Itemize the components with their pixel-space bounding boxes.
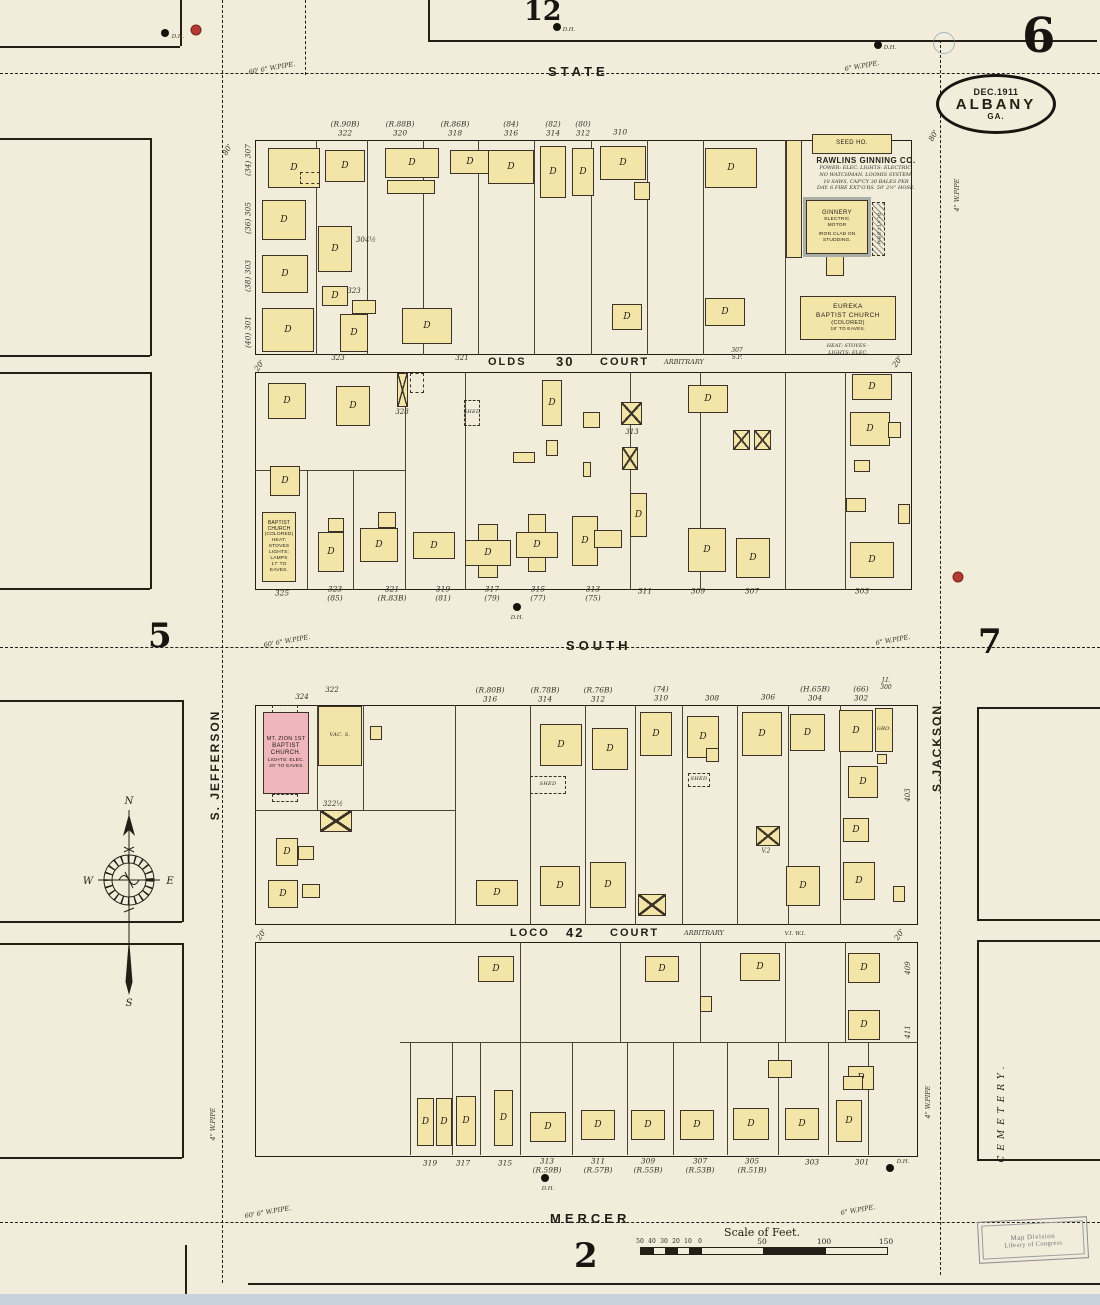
building <box>320 810 352 832</box>
lot-number: (R.86B) 318 <box>441 120 470 137</box>
building-label: D <box>699 732 706 742</box>
scale-legend: Scale of Feet. 50 40 30 20 10 0 50 100 1… <box>628 1226 896 1268</box>
lot-number: 305 (R.51B) <box>738 1157 767 1174</box>
lot-number: 301 <box>855 1159 869 1168</box>
building-label: D <box>644 1120 651 1130</box>
lot-number: 309 <box>691 588 705 597</box>
building: D <box>843 818 869 842</box>
adjacent-sheet-top: 12 <box>524 0 562 27</box>
frame-line <box>0 700 182 702</box>
building: D <box>540 146 566 198</box>
title-badge: DEC.1911 ALBANY GA. <box>936 74 1056 134</box>
mtzion-line-2: BAPTIST <box>272 743 300 751</box>
sanborn-map-sheet: DDDDDDDDDDDDDDDDDDDDDSHEDDDDDDDDDDDDDDDV… <box>0 0 1100 1305</box>
building-label: D <box>462 1116 469 1126</box>
fire-hydrant <box>191 25 202 36</box>
building-label: D <box>756 962 763 972</box>
building <box>638 894 666 916</box>
scale-tick: 10 <box>684 1238 692 1245</box>
building <box>706 748 719 762</box>
building-label: D <box>484 548 491 558</box>
building-label: D <box>281 269 288 279</box>
scan-edge <box>0 1294 1100 1305</box>
building: D <box>436 1098 452 1146</box>
frame-line <box>0 46 180 48</box>
building <box>826 256 844 276</box>
lot-number: (R.76B) 312 <box>584 686 613 703</box>
lot-number: D.H. <box>511 615 524 621</box>
lot-number: 310 <box>613 129 627 138</box>
building: D <box>325 150 365 182</box>
building-seed-house: SEED HO. <box>812 134 892 154</box>
building <box>328 518 344 532</box>
building: SHED <box>464 400 480 426</box>
building-label: D <box>422 1117 429 1127</box>
building-label: D <box>799 881 806 891</box>
frame-line <box>977 707 1100 709</box>
frame-line <box>0 1157 182 1159</box>
street-mercer: MERCER <box>550 1211 630 1226</box>
badge-city: ALBANY <box>956 97 1037 113</box>
lot-number: D.H. <box>884 45 897 51</box>
building <box>352 300 376 314</box>
lot-number: 308 <box>705 695 719 704</box>
building-label: D <box>280 215 287 225</box>
mtzion-line-3: CHURCH. <box>271 750 301 758</box>
building: D <box>476 880 518 906</box>
building-label: D <box>581 536 588 546</box>
baptist-line-6: 17' TO EAVES. <box>263 562 295 574</box>
building: D <box>516 532 558 558</box>
building: D <box>340 314 368 352</box>
eureka-note-2: LIGHTS: ELEC. <box>800 350 896 357</box>
lot-line <box>673 1042 674 1155</box>
water-pipe-label: 6" W.PIPE. <box>875 633 911 647</box>
lot-number: (H.65B) 304 <box>800 685 830 702</box>
building: D <box>581 1110 615 1140</box>
scale-bar-segment <box>665 1248 677 1254</box>
lot-number: 304½ <box>356 236 376 244</box>
building <box>370 726 382 740</box>
building-label: D <box>331 291 338 301</box>
scale-tick: 100 <box>817 1237 831 1246</box>
lot-number: (84) 316 <box>503 120 518 137</box>
building-label: D <box>493 888 500 898</box>
scale-bar-segment <box>653 1248 665 1254</box>
lot-line <box>307 470 308 590</box>
building-label: D <box>548 398 555 408</box>
building: D <box>705 148 757 188</box>
building: D <box>542 380 562 426</box>
baptist-line-4: HEAT: STOVES <box>263 538 295 550</box>
building-label: D <box>279 889 286 899</box>
building: VAC. S. <box>318 706 362 766</box>
lot-number: (R.80B) 316 <box>476 686 505 703</box>
building-label: D <box>866 424 873 434</box>
street-olds-number: 30 <box>556 354 574 369</box>
building: D <box>630 493 647 537</box>
scale-tick: 40 <box>648 1238 656 1245</box>
building-label: D <box>868 555 875 565</box>
building-label: D <box>852 825 859 835</box>
building: D <box>530 1112 566 1142</box>
building <box>302 884 320 898</box>
lot-line <box>572 1042 573 1155</box>
building-baptist-church-colored: BAPTIST CHURCH (COLORED) HEAT: STOVES LI… <box>262 512 296 582</box>
lot-number: (74) 310 <box>653 685 668 702</box>
frame-line <box>977 940 1100 942</box>
building-label: D <box>852 726 859 736</box>
building-label: D <box>860 1020 867 1030</box>
building: D <box>494 1090 513 1146</box>
lot-number: 306 <box>761 694 775 703</box>
building: D <box>450 150 490 174</box>
building: D <box>742 712 782 756</box>
building <box>622 447 638 470</box>
building <box>583 462 591 477</box>
building <box>843 1076 863 1090</box>
lot-number: D.H. <box>172 34 185 40</box>
building: D <box>843 862 875 900</box>
badge-state: GA. <box>987 112 1004 121</box>
building: D <box>402 308 452 344</box>
building-label: D <box>440 1117 447 1127</box>
building: D <box>790 714 825 751</box>
building: D <box>478 956 514 982</box>
street-olds-note: ARBITRARY <box>664 358 704 366</box>
lot-number: 409 <box>904 961 912 974</box>
lot-line <box>727 1042 728 1155</box>
lot-number: (36) 305 <box>245 202 254 234</box>
building: D <box>733 1108 769 1140</box>
lot-number: D.H. <box>542 1186 555 1192</box>
building <box>410 373 424 393</box>
rawlins-title: RAWLINS GINNING CO. <box>796 156 936 165</box>
utility-dot <box>161 29 169 37</box>
building-label: D <box>544 1122 551 1132</box>
street-loco-note: ARBITRARY <box>684 929 724 937</box>
scale-tick: 0 <box>698 1238 702 1245</box>
building-label: D <box>704 394 711 404</box>
scale-bar-segment <box>701 1248 763 1254</box>
water-pipe-label: 4" W.PIPE <box>924 1086 932 1119</box>
lot-number: 307 S.P. <box>731 348 742 362</box>
building: SHED <box>688 773 710 787</box>
building <box>583 412 600 428</box>
building: D <box>413 532 455 559</box>
building <box>877 754 887 764</box>
building: D <box>848 766 878 798</box>
frame-line <box>0 372 150 374</box>
lot-number: 411 <box>904 1025 912 1038</box>
building: D <box>572 148 594 196</box>
building-label: D <box>635 510 642 520</box>
lot-number: 315 <box>498 1160 512 1169</box>
building-label: D <box>859 777 866 787</box>
building-label: D <box>557 740 564 750</box>
building-label: D <box>350 328 357 338</box>
building-label: D <box>549 167 556 177</box>
building: D <box>680 1110 714 1140</box>
building: D <box>640 712 672 756</box>
lot-number: 325 <box>275 590 289 599</box>
scale-tick: 20 <box>672 1238 680 1245</box>
scale-tick: 50 <box>757 1237 767 1246</box>
lot-number: 319 (81) <box>435 585 450 602</box>
fire-hydrant <box>953 572 964 583</box>
lot-line <box>363 705 364 810</box>
building <box>733 430 750 450</box>
building-label: D <box>283 396 290 406</box>
building-label: D <box>331 244 338 254</box>
water-pipe-line <box>305 0 306 75</box>
building: D <box>276 838 298 866</box>
building <box>621 402 642 425</box>
building-label: D <box>703 545 710 555</box>
building <box>397 373 408 407</box>
building: D <box>262 308 314 352</box>
lot-line <box>620 942 621 1042</box>
eureka-note-1: HEAT: STOVES - <box>800 343 896 350</box>
building: D <box>456 1096 476 1146</box>
lot-number: 317 (79) <box>484 585 499 602</box>
street-s-jackson: S.JACKSON <box>930 704 944 792</box>
lot-number: 321 (R.83B) <box>378 585 407 602</box>
scale-tick: 150 <box>879 1237 893 1246</box>
building-label: D <box>579 167 586 177</box>
ginnery-clad-2: STUDDING. <box>823 238 851 244</box>
building-label: D <box>281 476 288 486</box>
water-pipe-line <box>222 0 223 1283</box>
building: D <box>336 386 370 426</box>
eureka-line-3: (COLORED) <box>831 320 865 327</box>
rawlins-ginning-co-label: RAWLINS GINNING CO. POWER: ELEC. LIGHTS:… <box>796 156 936 192</box>
building-label: D <box>868 382 875 392</box>
baptist-line-5: LIGHTS: LAMPS <box>263 550 295 562</box>
lot-number: 311 <box>638 588 652 597</box>
building: D <box>318 532 344 572</box>
lot-line <box>703 140 704 355</box>
compass-w: W <box>83 876 94 887</box>
building-label: D <box>341 161 348 171</box>
building: D <box>645 956 679 982</box>
utility-dot <box>513 603 521 611</box>
building: D <box>540 866 580 906</box>
lot-number: 80' <box>221 143 234 157</box>
building-label: D <box>327 547 334 557</box>
lot-number: (34) 307 <box>245 144 254 176</box>
lot-line <box>647 140 648 355</box>
building-label: SHED <box>540 782 557 788</box>
lot-number: J.I. 300 <box>880 678 891 692</box>
building-label: D <box>556 881 563 891</box>
lot-number: 328 <box>395 408 408 416</box>
scale-bar-segment <box>825 1248 887 1254</box>
adjacent-sheet-left: 5 <box>148 616 172 656</box>
lot-number: (R.90B) 322 <box>331 120 360 137</box>
building <box>888 422 901 438</box>
loc-stamp-inner: Map Division Library of Congress <box>981 1220 1085 1259</box>
building-label: D <box>747 1119 754 1129</box>
street-state: STATE <box>548 64 609 79</box>
lot-number: 323 <box>347 287 360 295</box>
lot-number: 322½ <box>323 800 343 808</box>
building-ginnery: GINNERY ELECTRIC MOTOR IRON CLAD ON STUD… <box>806 200 868 254</box>
building-label: D <box>604 880 611 890</box>
building: D <box>785 1108 819 1140</box>
lot-line <box>534 140 535 355</box>
building: D <box>848 1010 880 1040</box>
building <box>272 794 298 802</box>
scale-tick: 30 <box>660 1238 668 1245</box>
lot-line <box>700 942 701 1042</box>
lot-line <box>785 942 786 1042</box>
building-label: GRO. <box>877 727 891 733</box>
compass-e: E <box>165 876 174 887</box>
scale-bar-segment <box>677 1248 689 1254</box>
mtzion-line-1: MT. ZION 1ST <box>267 736 306 743</box>
building-label: D <box>758 729 765 739</box>
building: D <box>540 724 582 766</box>
utility-dot <box>874 41 882 49</box>
lot-number: 303 <box>855 588 869 597</box>
building: D <box>631 1110 665 1140</box>
building-label: D <box>845 1116 852 1126</box>
cemetery-label: CEMETERY. <box>997 1062 1007 1163</box>
eureka-line-2: BAPTIST CHURCH <box>816 312 880 320</box>
lot-number: (R.88B) 320 <box>386 120 415 137</box>
lot-line <box>785 372 786 590</box>
building: D <box>268 383 306 419</box>
building-label: D <box>290 163 297 173</box>
building: D <box>736 538 770 578</box>
rawlins-detail-4: DAY. 6 FIRE EXT'G'RS. 50' 2½" HOSE. <box>796 185 936 192</box>
utility-dot <box>541 1174 549 1182</box>
utility-dot <box>886 1164 894 1172</box>
mtzion-line-5: 20' TO EAVES <box>269 764 302 770</box>
building-label: D <box>284 325 291 335</box>
lot-line <box>682 705 683 925</box>
building: D <box>590 862 626 908</box>
lot-number: 323 (85) <box>327 585 342 602</box>
building: GRO. <box>875 708 893 752</box>
building <box>854 460 870 472</box>
lot-line <box>530 705 531 925</box>
street-loco-type: COURT <box>610 927 659 939</box>
platform-label: PLATFORM <box>876 213 881 245</box>
building: D <box>705 298 745 326</box>
building-label: D <box>507 162 514 172</box>
sheet-number: 6 <box>1022 8 1055 64</box>
lot-number: 307 <box>745 588 759 597</box>
building: D <box>848 953 880 983</box>
frame-line <box>150 372 152 589</box>
lot-number: 20' <box>255 928 269 942</box>
lot-line <box>353 470 354 590</box>
building-label: D <box>860 963 867 973</box>
building-label: D <box>721 307 728 317</box>
building-platform: PLATFORM <box>872 202 885 256</box>
street-s-jefferson: S. JEFFERSON <box>208 710 222 821</box>
building: D <box>262 255 308 293</box>
lot-line <box>455 705 456 925</box>
lot-number: V.2 <box>761 849 770 856</box>
frame-line <box>977 1159 1100 1161</box>
lot-number: 309 (R.55B) <box>634 1157 663 1174</box>
water-pipe-label: 60' 6" W.PIPE. <box>244 1204 292 1220</box>
frame-line <box>150 138 152 356</box>
building: D <box>592 728 628 770</box>
water-pipe-line <box>940 40 941 1275</box>
lot-line <box>452 1042 453 1155</box>
rawlins-detail-1: POWER: ELEC. LIGHTS: ELECTRIC. <box>796 165 936 172</box>
eureka-line-4: 18' TO EAVES. <box>831 327 866 333</box>
building-label: D <box>855 876 862 886</box>
lot-number: (80) 312 <box>575 120 590 137</box>
building: D <box>740 953 780 981</box>
lot-line <box>255 810 455 811</box>
lot-number: 303 <box>805 1159 819 1168</box>
building: D <box>262 200 306 240</box>
lot-number: 324 <box>295 693 308 701</box>
street-olds-name: OLDS <box>488 356 527 368</box>
compass-south-spike <box>126 938 133 995</box>
lot-number: 313 (75) <box>585 585 600 602</box>
building-label: D <box>727 163 734 173</box>
lot-line <box>868 1042 869 1155</box>
building <box>846 498 866 512</box>
water-pipe-label: 4" W.PIPE <box>953 179 961 212</box>
scale-bar <box>640 1247 888 1255</box>
building: D <box>688 385 728 413</box>
lot-number: D.H. <box>897 1159 910 1165</box>
building: D <box>385 148 439 178</box>
lot-line <box>585 705 586 925</box>
building-label: SHED <box>691 777 708 783</box>
building-label: D <box>652 729 659 739</box>
lot-number: (38) 303 <box>245 260 254 292</box>
building-label: VAC. S. <box>330 733 351 739</box>
seed-house-label: SEED HO. <box>836 140 868 148</box>
building <box>513 452 535 463</box>
adjacent-sheet-bottom: 2 <box>574 1236 598 1276</box>
frame-line <box>248 1283 1100 1285</box>
lot-line <box>828 1042 829 1155</box>
lot-number: (82) 314 <box>545 120 560 137</box>
lot-number: 322 <box>325 686 338 694</box>
building: D <box>850 412 890 446</box>
compass-rose: N W E S <box>70 790 188 1008</box>
building: D <box>318 226 352 272</box>
lot-number: (R.78B) 314 <box>531 686 560 703</box>
street-loco-number: 42 <box>566 925 584 940</box>
building: D <box>488 150 534 184</box>
lot-number: 321 <box>455 354 468 362</box>
lot-number: 403 <box>904 788 912 801</box>
building-label: D <box>749 553 756 563</box>
scale-tick: 50 <box>636 1238 644 1245</box>
building: D <box>600 146 646 180</box>
adjacent-sheet-right: 7 <box>978 622 1002 662</box>
scale-bar-segment <box>689 1248 701 1254</box>
building-mt-zion-baptist-church: MT. ZION 1ST BAPTIST CHURCH. LIGHTS: ELE… <box>263 712 309 794</box>
building: D <box>322 286 348 306</box>
building <box>898 504 910 524</box>
scale-bar-segment <box>763 1248 825 1254</box>
lot-number: 313 (R.59B) <box>533 1157 562 1174</box>
building-label: D <box>533 540 540 550</box>
building <box>756 826 780 846</box>
